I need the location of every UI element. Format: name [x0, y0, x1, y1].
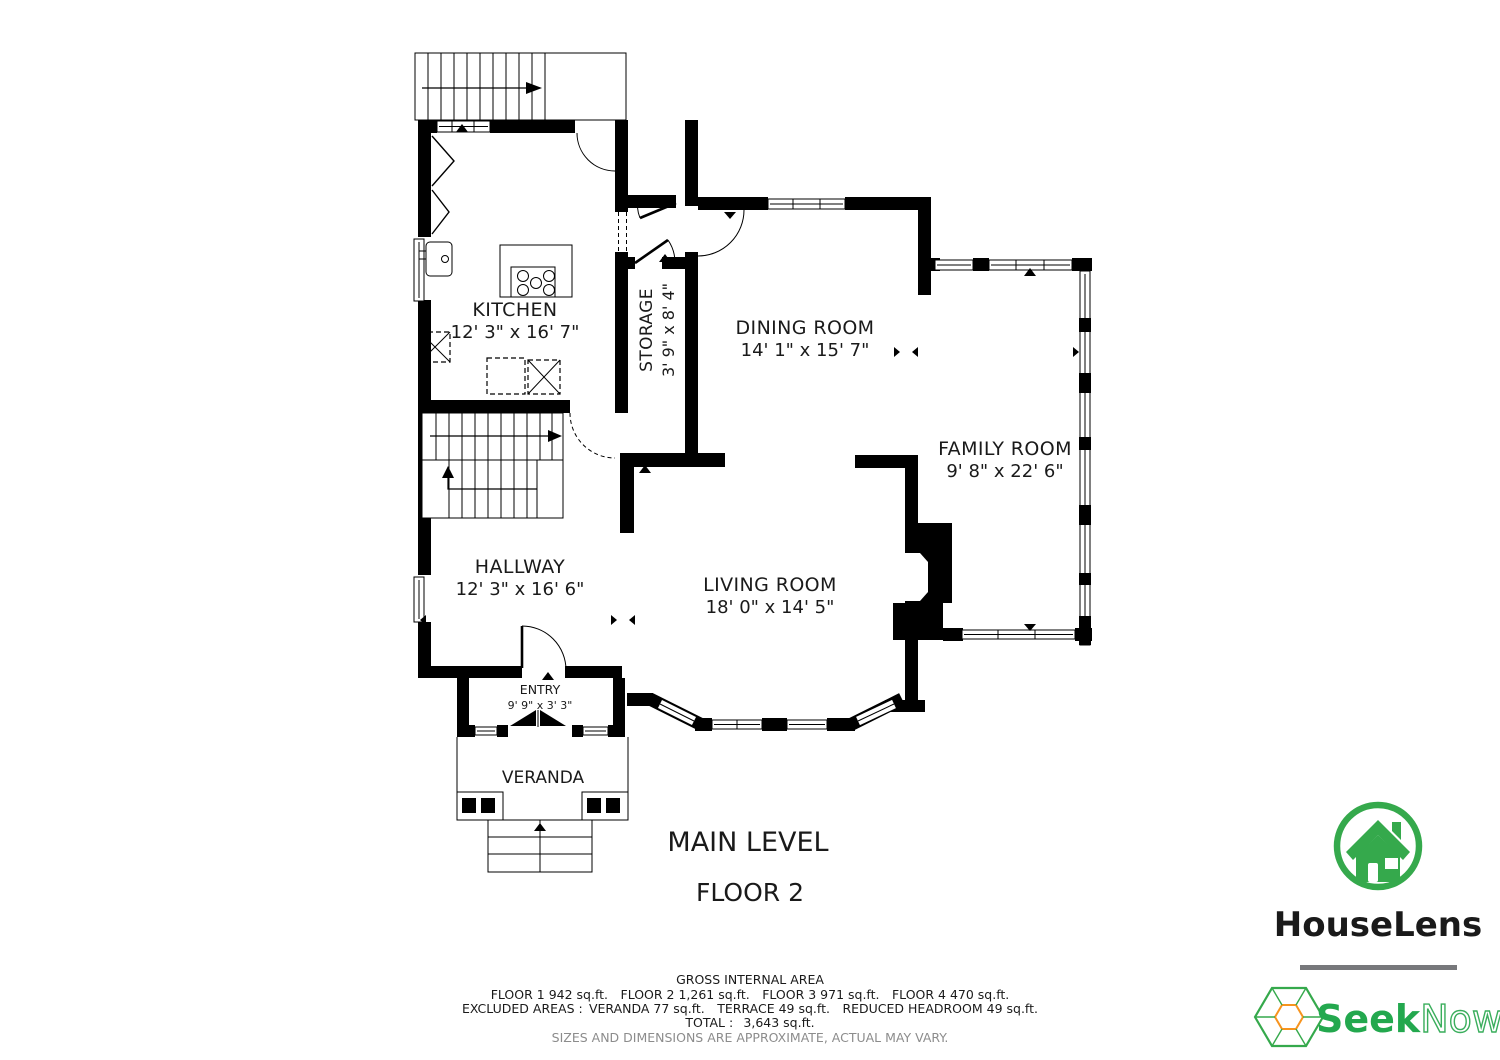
- total-area: TOTAL : 3,643 sq.ft.: [684, 1015, 814, 1030]
- room-label-kitchen: KITCHEN: [472, 299, 557, 321]
- floor-label: FLOOR 2: [696, 878, 804, 907]
- room-label-hallway: HALLWAY: [475, 556, 565, 578]
- room-label-entry: ENTRY: [520, 682, 561, 697]
- room-label-family: FAMILY ROOM: [938, 438, 1072, 460]
- seeknow-word-now: Now.: [1420, 997, 1500, 1041]
- room-dims-family: 9' 8" x 22' 6": [946, 461, 1063, 482]
- seeknow-wordmark: SeekNow.®: [1316, 997, 1500, 1041]
- brand-divider: [1300, 965, 1457, 970]
- fireplace-notch: [905, 553, 928, 601]
- disclaimer: SIZES AND DIMENSIONS ARE APPROXIMATE, AC…: [552, 1030, 949, 1045]
- floor-plan-canvas: KITCHEN 12' 3" x 16' 7" STORAGE 3' 9" x …: [0, 0, 1500, 1060]
- room-dims-living: 18' 0" x 14' 5": [706, 597, 835, 618]
- excluded-areas: EXCLUDED AREAS : VERANDA 77 sq.ft. TERRA…: [462, 1001, 1038, 1016]
- room-dims-dining: 14' 1" x 15' 7": [741, 340, 870, 361]
- room-label-dining: DINING ROOM: [736, 317, 875, 339]
- floors-areas: FLOOR 1 942 sq.ft. FLOOR 2 1,261 sq.ft. …: [491, 987, 1010, 1002]
- level-title: MAIN LEVEL: [667, 827, 828, 858]
- room-dims-hallway: 12' 3" x 16' 6": [456, 579, 585, 600]
- seeknow-word-seek: Seek: [1316, 997, 1421, 1041]
- floorplan-page: KITCHEN 12' 3" x 16' 7" STORAGE 3' 9" x …: [0, 0, 1500, 1060]
- house-window: [1385, 858, 1398, 869]
- room-dims-entry: 9' 9" x 3' 3": [508, 699, 573, 712]
- room-label-storage: STORAGE: [637, 288, 657, 372]
- exterior-stairs-top: [415, 53, 626, 120]
- houselens-wordmark: HouseLens: [1274, 905, 1482, 945]
- room-dims-storage: 3' 9" x 8' 4": [659, 283, 678, 377]
- interior-stairs: [422, 413, 563, 518]
- room-label-living: LIVING ROOM: [703, 574, 837, 596]
- house-door: [1368, 863, 1378, 882]
- gross-area-title: GROSS INTERNAL AREA: [676, 972, 824, 987]
- room-label-veranda: VERANDA: [502, 768, 585, 788]
- room-dims-kitchen: 12' 3" x 16' 7": [451, 322, 580, 343]
